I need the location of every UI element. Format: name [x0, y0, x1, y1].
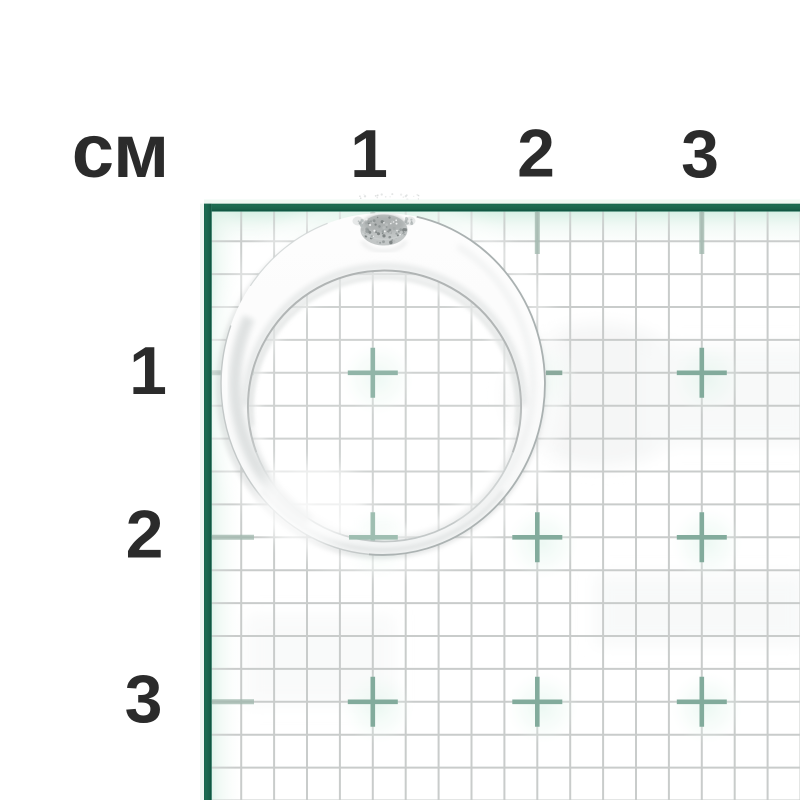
svg-text:см: см [72, 109, 169, 194]
svg-text:2: 2 [126, 497, 164, 573]
svg-text:2: 2 [517, 116, 555, 192]
svg-text:3: 3 [681, 116, 719, 192]
svg-text:3: 3 [125, 661, 163, 737]
svg-text:1: 1 [129, 333, 167, 409]
svg-text:1: 1 [350, 116, 388, 192]
